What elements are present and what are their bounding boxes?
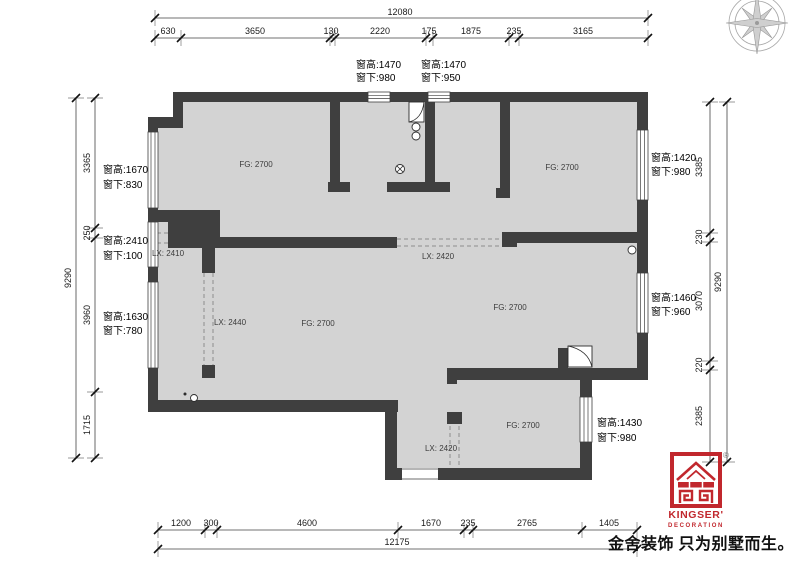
logo-maze-right [700, 491, 712, 503]
wall-right-low [637, 333, 648, 368]
beam-label-2410: LX: 2410 [152, 249, 185, 258]
room-label-living: FG: 2700 [493, 303, 527, 312]
dim-left-total: 9290 [63, 268, 73, 288]
window-top-1 [368, 92, 390, 102]
wall-top [173, 92, 648, 102]
dim-bottom-seg: 300 [203, 518, 218, 528]
dim-bottom-seg: 1670 [421, 518, 441, 528]
entry-door-opening [402, 468, 438, 480]
logo-bar [678, 482, 714, 488]
wall-divider-bottom [202, 365, 215, 378]
dim-left-seg: 3365 [82, 153, 92, 173]
window-label-left1b: 窗下:830 [103, 178, 143, 191]
logo-brand-sub: DECORATION [668, 523, 724, 529]
dim-right-seg: 2385 [694, 406, 704, 426]
beam-label-2420-entry: LX: 2420 [425, 444, 458, 453]
dim-left-seg: 250 [82, 225, 92, 240]
window-label-right3: 窗高:1430 [597, 416, 642, 429]
window-label-right2b: 窗下:960 [651, 305, 691, 318]
floor-area [148, 92, 648, 480]
dim-top-seg: 175 [421, 26, 436, 36]
floor-plan-canvas: 12080 630 3650 130 2220 175 1875 235 316… [0, 0, 800, 575]
window-label-top1b: 窗下:980 [356, 71, 396, 84]
wall-kitchen-bottom [387, 182, 450, 192]
room-label-room-bottom: FG: 2700 [506, 421, 540, 430]
window-label-right1: 窗高:1420 [651, 151, 696, 164]
registered-mark: ® [723, 451, 729, 460]
dim-bottom-total: 12175 [384, 537, 409, 547]
wall-kitchen-left-stub [328, 182, 350, 192]
dimension-bottom: 1200 300 4600 1670 235 2765 1405 12175 [154, 518, 641, 557]
room-label-bedroom-right: FG: 2700 [545, 163, 579, 172]
wall-door-stub [558, 348, 568, 370]
wall-bedroom-bottom-step [502, 232, 517, 247]
sink-bowl2-icon [412, 132, 420, 140]
window-label-top1: 窗高:1470 [356, 58, 401, 71]
wall-entry-block [447, 412, 462, 424]
window-top-2 [428, 92, 450, 102]
dimension-right: 3385 230 3070 220 2385 9290 [694, 98, 735, 466]
room-door-icon [568, 346, 592, 367]
window-label-top2: 窗高:1470 [421, 58, 466, 71]
room-label-bedroom-left: FG: 2700 [239, 160, 273, 169]
drain-icon [396, 165, 405, 174]
dim-top-seg: 2220 [370, 26, 390, 36]
wall-bedroom-left-foot [496, 188, 510, 198]
window-left-1 [148, 132, 158, 208]
wall-right-top [637, 102, 648, 130]
window-label-right1b: 窗下:980 [651, 165, 691, 178]
sink-bowl-icon [412, 123, 420, 131]
dim-bottom-seg: 1405 [599, 518, 619, 528]
floor-polygon [148, 92, 648, 480]
window-label-right3b: 窗下:980 [597, 431, 637, 444]
dim-left-seg: 1715 [82, 415, 92, 435]
wall-bottom-left [148, 400, 398, 412]
window-label-top2b: 窗下:950 [421, 71, 461, 84]
dim-top-seg: 3165 [573, 26, 593, 36]
window-label-left1: 窗高:1670 [103, 163, 148, 176]
window-right-3 [580, 397, 592, 442]
dim-top-seg: 235 [506, 26, 521, 36]
logo-maze-left [680, 491, 692, 503]
window-left-2 [148, 222, 158, 267]
wall-corridor [210, 237, 397, 248]
window-label-left2: 窗高:2410 [103, 234, 148, 247]
window-label-left3b: 窗下:780 [103, 324, 143, 337]
window-label-right2: 窗高:1460 [651, 291, 696, 304]
kitchen-door-icon [409, 102, 424, 122]
compass-rose-icon [726, 0, 788, 54]
dim-bottom-seg: 2765 [517, 518, 537, 528]
dim-top-total: 12080 [387, 7, 412, 17]
logo-roof-inner [687, 471, 705, 479]
window-left-3 [148, 282, 158, 368]
dimension-left: 9290 3365 250 3960 1715 [63, 94, 103, 462]
beam-label-2420-mid: LX: 2420 [422, 252, 455, 261]
dim-top-seg: 130 [323, 26, 338, 36]
dim-right-seg: 230 [694, 229, 704, 244]
wall-inset-right-bottom [580, 442, 592, 480]
room-label-dining: FG: 2700 [301, 319, 335, 328]
wall-step-left [148, 210, 220, 222]
dim-right-seg: 220 [694, 357, 704, 372]
dim-left-seg: 3960 [82, 305, 92, 325]
dimension-top: 12080 630 3650 130 2220 175 1875 235 316… [151, 7, 652, 46]
beam-label-2440: LX: 2440 [214, 318, 247, 327]
dim-bottom-seg: 4600 [297, 518, 317, 528]
window-right-1 [637, 130, 648, 200]
wall-dot [184, 393, 187, 396]
kingser-logo: ® KINGSER' DECORATION 金舍装饰 只为别墅而生。 [607, 451, 794, 553]
wall-bedroom-bottom [502, 232, 648, 243]
wall-kitchen-right [425, 102, 435, 182]
window-right-2 [637, 273, 648, 333]
wall-room-top [457, 368, 648, 380]
logo-slogan: 金舍装饰 只为别墅而生。 [607, 534, 794, 553]
wall-divider-top [202, 248, 215, 273]
wall-room-top-step [447, 368, 457, 384]
door-hinge-icon [628, 246, 636, 254]
dim-top-seg: 1875 [461, 26, 481, 36]
dim-top-seg: 3650 [245, 26, 265, 36]
dim-right-total: 9290 [713, 272, 723, 292]
floor-plan-page: 12080 630 3650 130 2220 175 1875 235 316… [0, 0, 800, 575]
wall-left-block2 [148, 267, 158, 282]
door-hinge2-icon [191, 395, 198, 402]
wall-bedroom-left [500, 102, 510, 198]
wall-kitchen-left [330, 102, 340, 192]
wall-topleft-step [148, 117, 183, 128]
dim-bottom-seg: 235 [460, 518, 475, 528]
window-label-left3: 窗高:1630 [103, 310, 148, 323]
dim-top-seg: 630 [160, 26, 175, 36]
dim-bottom-seg: 1200 [171, 518, 191, 528]
logo-brand-name: KINGSER' [668, 509, 723, 521]
window-label-left2b: 窗下:100 [103, 249, 143, 262]
wall-topleft-vert [173, 102, 183, 118]
